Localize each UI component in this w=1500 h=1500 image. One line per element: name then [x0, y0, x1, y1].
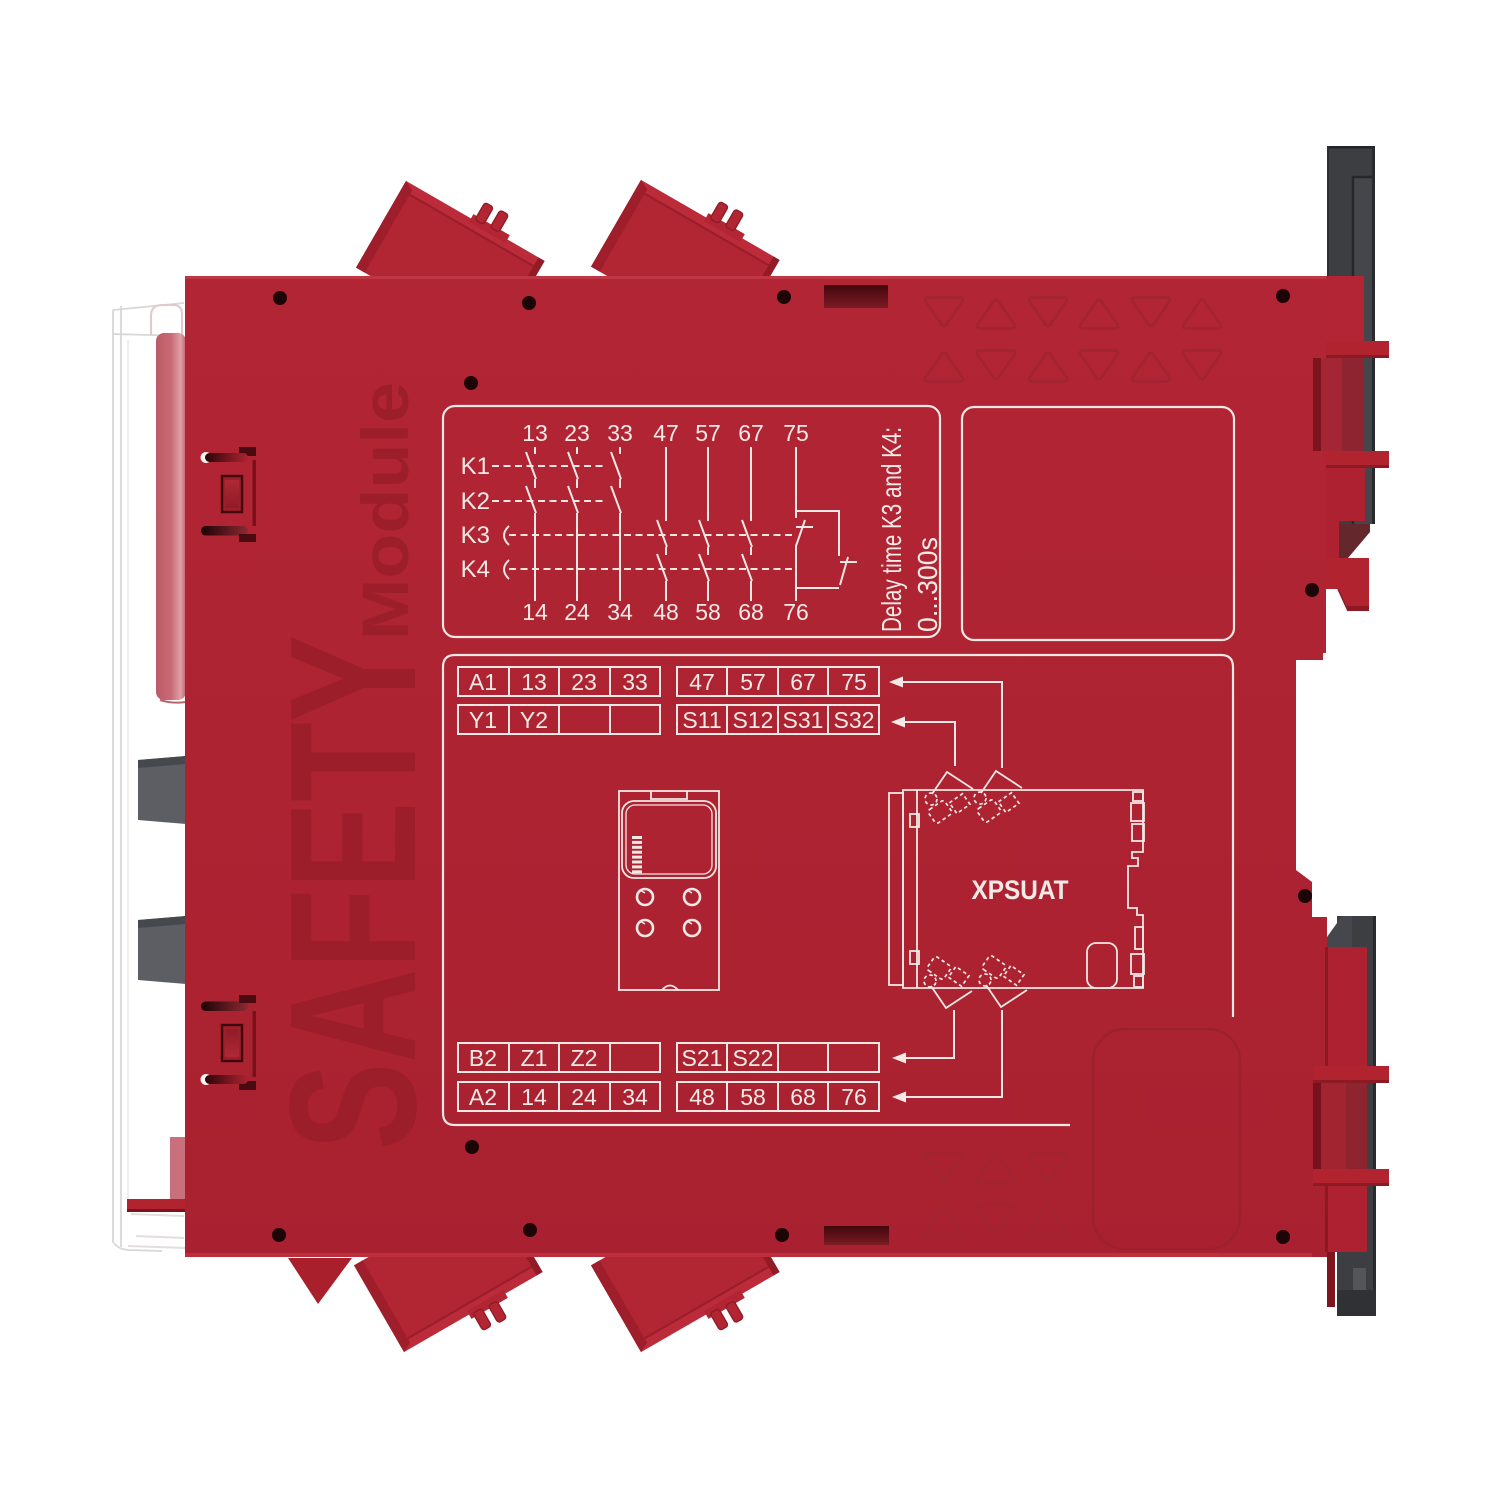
svg-text:Z2: Z2 — [571, 1045, 598, 1071]
svg-text:67: 67 — [738, 420, 764, 446]
svg-text:K1: K1 — [461, 453, 490, 480]
svg-text:S32: S32 — [834, 707, 875, 733]
svg-text:76: 76 — [841, 1084, 867, 1110]
svg-text:Module: Module — [348, 382, 422, 640]
svg-text:47: 47 — [653, 420, 679, 446]
svg-text:75: 75 — [841, 669, 867, 695]
svg-text:14: 14 — [521, 1084, 547, 1110]
svg-text:24: 24 — [564, 599, 590, 625]
svg-text:K4: K4 — [461, 556, 490, 583]
svg-text:Y1: Y1 — [469, 707, 497, 733]
svg-text:Z1: Z1 — [521, 1045, 548, 1071]
svg-text:XPSUAT: XPSUAT — [972, 875, 1069, 905]
svg-text:47: 47 — [689, 669, 715, 695]
svg-text:14: 14 — [522, 599, 548, 625]
svg-text:23: 23 — [564, 420, 590, 446]
svg-text:Y2: Y2 — [520, 707, 548, 733]
svg-text:68: 68 — [790, 1084, 816, 1110]
svg-text:33: 33 — [622, 669, 648, 695]
svg-text:S22: S22 — [733, 1045, 774, 1071]
svg-text:23: 23 — [571, 669, 597, 695]
svg-text:75: 75 — [783, 420, 809, 446]
svg-text:Delay time K3 and K4:: Delay time K3 and K4: — [876, 427, 907, 632]
svg-text:S31: S31 — [783, 707, 824, 733]
svg-text:34: 34 — [607, 599, 633, 625]
svg-text:13: 13 — [521, 669, 547, 695]
svg-text:0...300s: 0...300s — [912, 537, 943, 632]
svg-text:SAFETY: SAFETY — [253, 635, 454, 1150]
svg-text:K3: K3 — [461, 522, 490, 549]
svg-text:A2: A2 — [469, 1084, 497, 1110]
svg-text:S12: S12 — [733, 707, 774, 733]
svg-text:A1: A1 — [469, 669, 497, 695]
svg-text:57: 57 — [740, 669, 766, 695]
svg-text:48: 48 — [689, 1084, 715, 1110]
svg-text:K2: K2 — [461, 488, 490, 515]
svg-text:13: 13 — [522, 420, 548, 446]
svg-text:24: 24 — [571, 1084, 597, 1110]
svg-text:S11: S11 — [682, 707, 721, 733]
svg-text:67: 67 — [790, 669, 816, 695]
svg-text:S21: S21 — [682, 1045, 723, 1071]
svg-text:48: 48 — [653, 599, 679, 625]
svg-text:B2: B2 — [469, 1045, 497, 1071]
svg-text:34: 34 — [622, 1084, 648, 1110]
svg-text:33: 33 — [607, 420, 633, 446]
svg-text:58: 58 — [740, 1084, 766, 1110]
svg-text:58: 58 — [695, 599, 721, 625]
svg-text:76: 76 — [783, 599, 809, 625]
svg-text:57: 57 — [695, 420, 721, 446]
svg-text:68: 68 — [738, 599, 764, 625]
